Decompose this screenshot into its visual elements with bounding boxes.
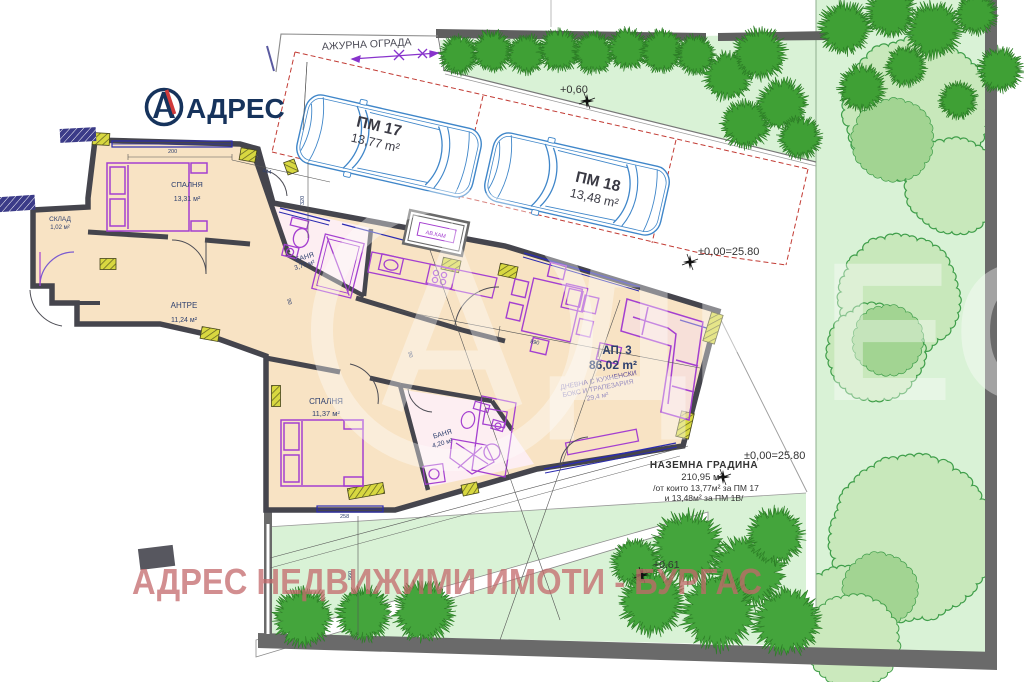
svg-text:210,95 м²: 210,95 м² (681, 472, 722, 483)
svg-text:+0,60: +0,60 (560, 84, 588, 96)
svg-text:и 13,48м² за ПМ 1В/: и 13,48м² за ПМ 1В/ (665, 493, 744, 503)
svg-text:/от които 13,77м² за ПМ 17: /от които 13,77м² за ПМ 17 (653, 483, 759, 493)
svg-text:АДРЕС НЕДВИЖИМИ ИМОТИ - БУРГАС: АДРЕС НЕДВИЖИМИ ИМОТИ - БУРГАС (132, 561, 762, 602)
svg-text:АДРЕС: АДРЕС (186, 93, 285, 124)
svg-text:200: 200 (168, 149, 177, 155)
svg-text:1,02 м²: 1,02 м² (50, 225, 69, 231)
svg-text:320: 320 (300, 196, 306, 205)
svg-text:ДРЕС: ДРЕС (548, 221, 1024, 442)
svg-text:13,31 м²: 13,31 м² (174, 196, 201, 203)
svg-text:СКЛАД: СКЛАД (49, 216, 71, 223)
svg-text:11,24 м²: 11,24 м² (171, 317, 198, 324)
svg-text:258: 258 (340, 514, 349, 520)
svg-text:СПАЛНЯ: СПАЛНЯ (171, 180, 203, 189)
svg-text:АНТРЕ: АНТРЕ (171, 301, 198, 310)
svg-text:НАЗЕМНА ГРАДИНА: НАЗЕМНА ГРАДИНА (650, 460, 758, 471)
